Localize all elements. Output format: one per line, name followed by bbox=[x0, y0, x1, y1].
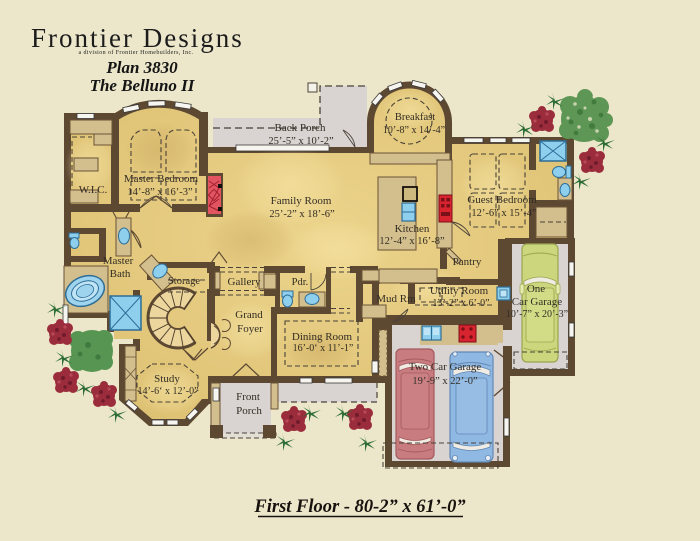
svg-text:Foyer: Foyer bbox=[237, 323, 263, 335]
svg-text:Family Room: Family Room bbox=[271, 195, 332, 207]
svg-text:Back Porch: Back Porch bbox=[274, 122, 326, 134]
svg-text:Pdr.: Pdr. bbox=[292, 277, 309, 288]
svg-text:Breakfast: Breakfast bbox=[395, 112, 435, 123]
svg-text:16’-0‘ x 11’-1”: 16’-0‘ x 11’-1” bbox=[293, 343, 354, 354]
svg-text:The Belluno II: The Belluno II bbox=[90, 76, 196, 95]
svg-text:Bath: Bath bbox=[110, 268, 131, 280]
svg-text:Mud Rm: Mud Rm bbox=[376, 293, 416, 305]
svg-text:Guest Bedroom: Guest Bedroom bbox=[467, 194, 537, 206]
svg-text:a division of Frontier Homebui: a division of Frontier Homebuilders, Inc… bbox=[79, 49, 194, 56]
svg-text:Pantry: Pantry bbox=[453, 256, 482, 268]
svg-text:14’-8” x 16’-3”: 14’-8” x 16’-3” bbox=[127, 187, 193, 198]
svg-text:Grand: Grand bbox=[235, 309, 263, 321]
svg-text:Porch: Porch bbox=[236, 405, 262, 417]
svg-text:12’-6” x 15’-4”: 12’-6” x 15’-4” bbox=[471, 208, 537, 219]
svg-text:Gallery: Gallery bbox=[228, 276, 261, 288]
svg-text:Dining Room: Dining Room bbox=[292, 331, 353, 343]
svg-text:Master Bedroom: Master Bedroom bbox=[124, 173, 199, 185]
svg-text:10’-8” x 14’-4”: 10’-8” x 14’-4” bbox=[383, 125, 445, 136]
svg-text:First Floor - 80-2” x 61’-0”: First Floor - 80-2” x 61’-0” bbox=[253, 497, 465, 517]
svg-text:10’-7” x 20’-3”: 10’-7” x 20’-3” bbox=[506, 309, 568, 320]
svg-text:25’-5” x 10’-2”: 25’-5” x 10’-2” bbox=[268, 136, 334, 147]
svg-text:Study: Study bbox=[154, 373, 180, 385]
svg-text:Front: Front bbox=[236, 391, 260, 403]
svg-text:Storage: Storage bbox=[168, 276, 200, 287]
svg-text:13’-2” x 6’-0”: 13’-2” x 6’-0” bbox=[432, 298, 489, 309]
svg-text:Kitchen: Kitchen bbox=[395, 223, 430, 235]
svg-text:Utility Room: Utility Room bbox=[430, 285, 489, 297]
svg-text:W.I.C.: W.I.C. bbox=[79, 184, 108, 196]
svg-text:12’-4” x 16’-8”: 12’-4” x 16’-8” bbox=[379, 236, 445, 247]
svg-text:Car Garage: Car Garage bbox=[512, 296, 563, 308]
svg-text:25’-2” x 18’-6”: 25’-2” x 18’-6” bbox=[269, 209, 335, 220]
svg-text:19’-9” x 22’-0”: 19’-9” x 22’-0” bbox=[412, 376, 478, 387]
svg-text:Frontier Designs: Frontier Designs bbox=[31, 23, 244, 53]
svg-text:14’-6‘ x 12’-0”: 14’-6‘ x 12’-0” bbox=[137, 386, 198, 397]
svg-text:One: One bbox=[527, 283, 545, 295]
svg-text:Master: Master bbox=[103, 255, 134, 267]
svg-text:Plan 3830: Plan 3830 bbox=[105, 58, 178, 77]
svg-text:Two Car Garage: Two Car Garage bbox=[409, 361, 482, 373]
